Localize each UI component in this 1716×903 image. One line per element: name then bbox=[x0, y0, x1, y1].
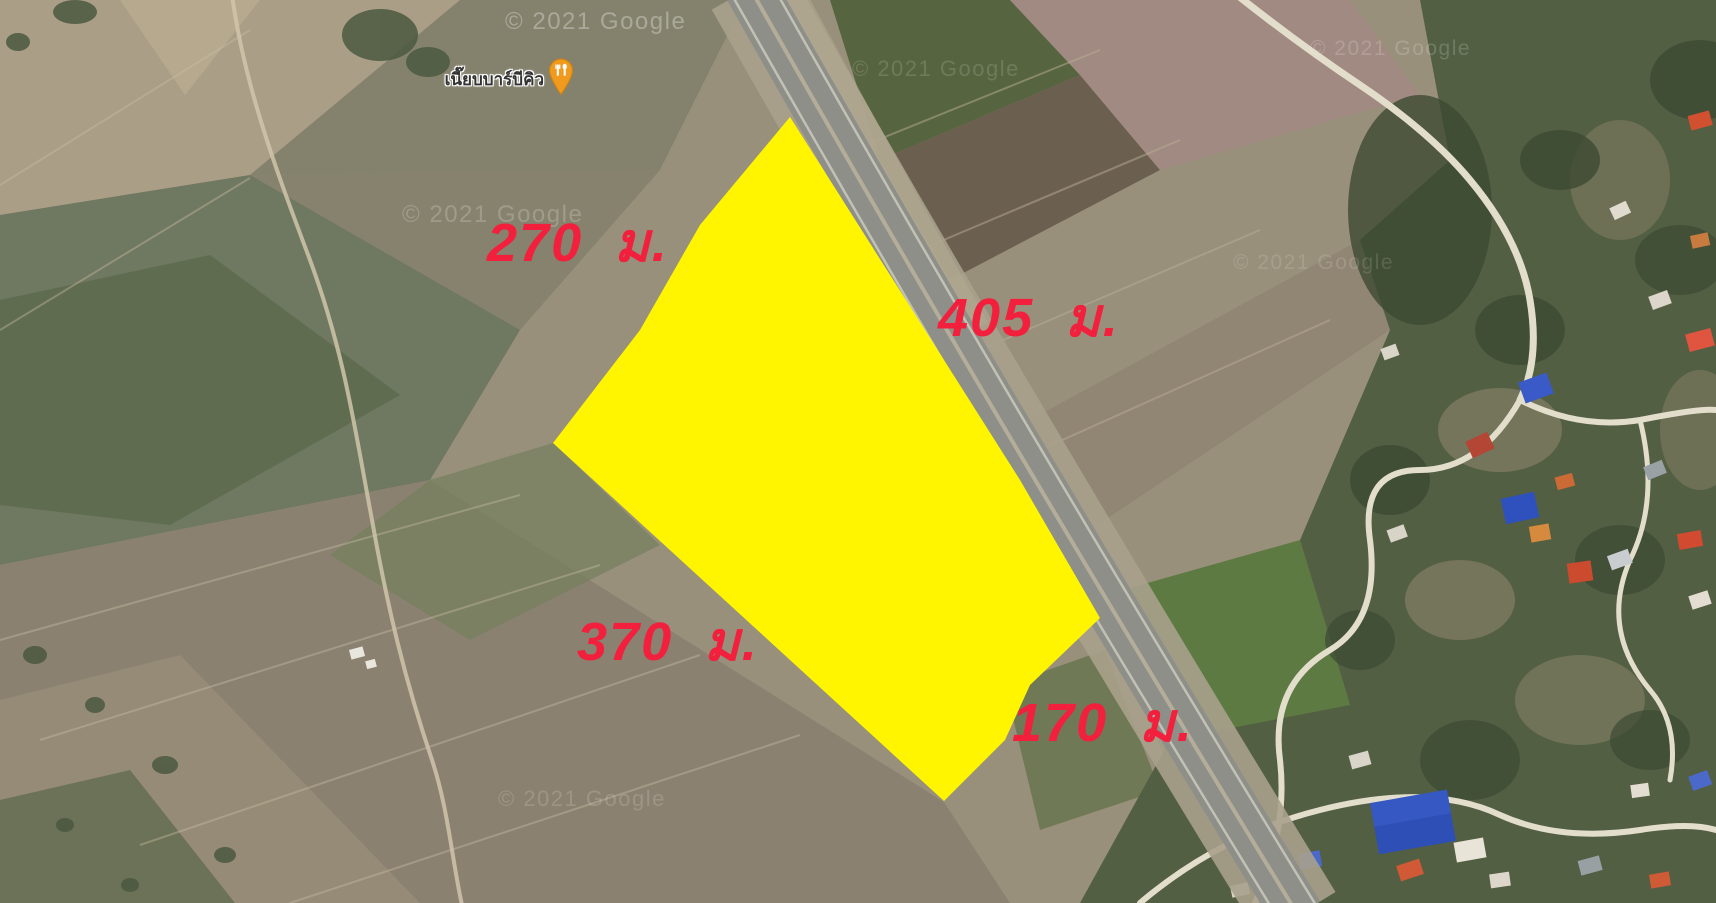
poi-label: เนี๊ยบบาร์บีคิว bbox=[445, 70, 544, 90]
satellite-map[interactable]: © 2021 Google © 2021 Google © 2021 Googl… bbox=[0, 0, 1716, 903]
poi-marker-restaurant[interactable]: เนี๊ยบบาร์บีคิว bbox=[418, 58, 578, 102]
dimension-label-northwest: 270 ม. bbox=[487, 216, 669, 270]
restaurant-pin-icon[interactable] bbox=[548, 58, 574, 96]
dimension-label-southeast: 170 ม. bbox=[1012, 696, 1194, 750]
dimension-label-northeast: 405 ม. bbox=[938, 291, 1120, 345]
satellite-imagery bbox=[0, 0, 1716, 903]
dimension-label-southwest: 370 ม. bbox=[577, 615, 759, 669]
